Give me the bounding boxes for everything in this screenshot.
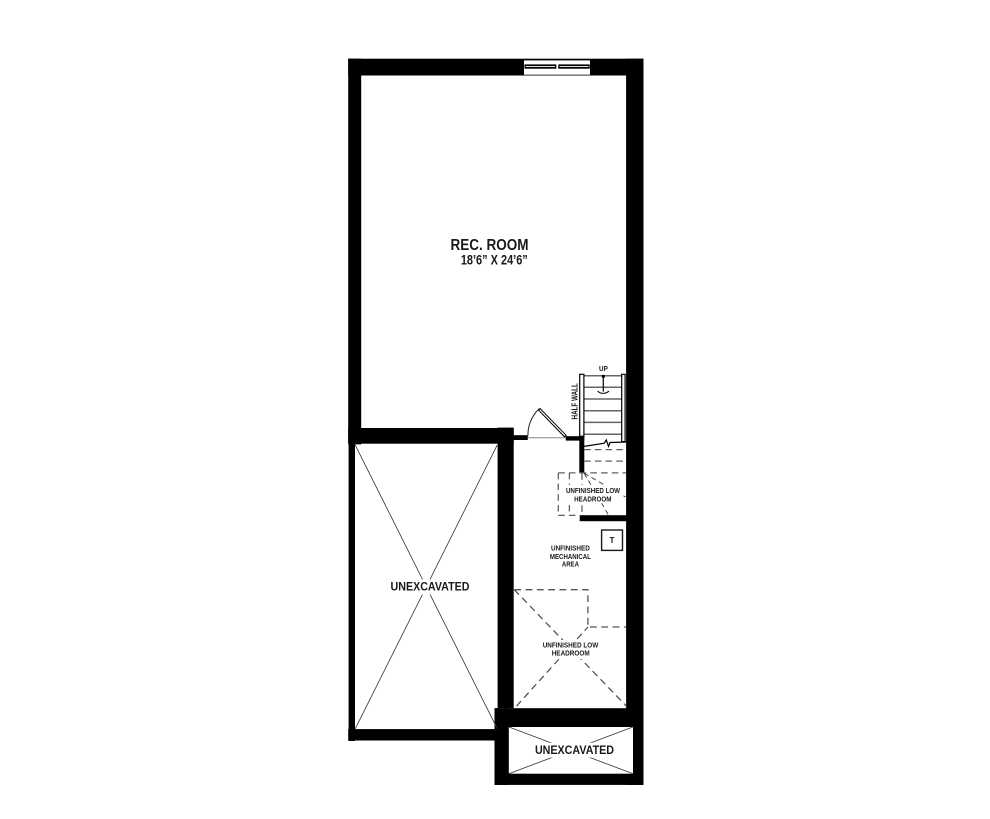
svg-text:HALF WALL: HALF WALL <box>570 383 580 420</box>
svg-text:18’6” X 24’6”: 18’6” X 24’6” <box>461 252 528 267</box>
svg-text:T: T <box>609 536 614 545</box>
svg-text:UP: UP <box>599 364 608 373</box>
svg-text:AREA: AREA <box>562 560 579 569</box>
svg-text:UNFINISHED LOW: UNFINISHED LOW <box>566 488 620 495</box>
svg-text:UNEXCAVATED: UNEXCAVATED <box>535 743 614 757</box>
svg-text:UNFINISHED LOW: UNFINISHED LOW <box>543 643 599 650</box>
svg-text:HEADROOM: HEADROOM <box>552 650 590 657</box>
svg-text:UNEXCAVATED: UNEXCAVATED <box>391 580 470 594</box>
svg-text:HEADROOM: HEADROOM <box>574 496 611 503</box>
